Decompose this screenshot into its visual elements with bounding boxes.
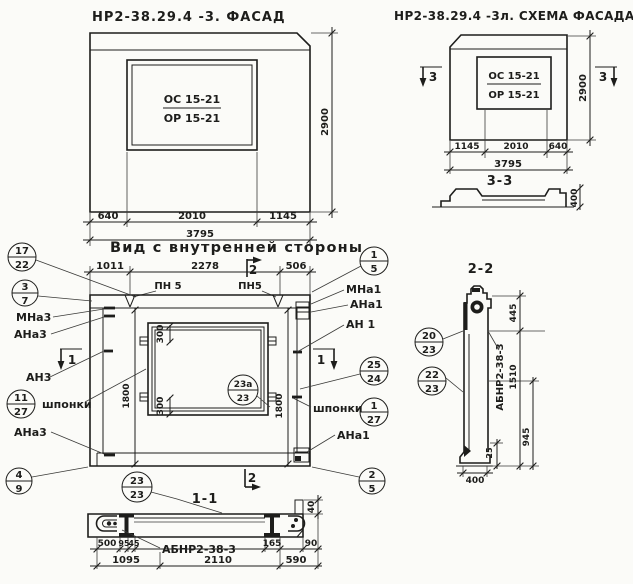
callout-2-5: 2 5 [312,467,385,495]
dim-506: 506 [286,261,307,272]
callout-4-9: 4 9 [6,467,88,495]
dim-400: 400 [570,189,580,208]
facade-window-mark-top: ОС 15-21 [164,93,220,106]
section-2-2-profile [456,286,493,466]
section-1-label: 1 [317,353,325,367]
section-1-mark-left: 1 [58,349,82,370]
label-ana3-low: АНа3 [14,426,47,439]
section-1-1-title: 1-1 [192,492,219,507]
dim-3795: 3795 [186,229,214,240]
section-2-2-title: 2-2 [468,262,495,277]
callout-top: 23а [234,380,253,390]
section-3-label: 3 [599,70,607,84]
section-3-mark-left: 3 [420,67,442,87]
facade-drawing: НР2-38.29.4 -3. ФАСАД ОС 15-21 ОР 15-21 … [83,10,338,246]
schema-window [477,57,551,109]
callout-bottom: 5 [369,484,376,495]
callout-top: 1 [371,401,378,412]
dim-590: 590 [286,555,307,566]
inner-panel [90,295,310,466]
facade-window-mark-bottom: ОР 15-21 [164,112,220,125]
dim-90: 90 [305,539,318,549]
label-shponki-left: шпонки [42,398,92,411]
dim-445: 445 [509,304,519,323]
dim-2278: 2278 [191,261,219,272]
drawing-sheet: НР2-38.29.4 -3. ФАСАД ОС 15-21 ОР 15-21 … [0,0,633,584]
section-2-label: 2 [249,263,257,277]
dim-1145: 1145 [269,211,297,222]
label-mna1: МНа1 [346,283,381,296]
dim-45: 45 [128,539,140,548]
callout-bottom: 23 [425,384,439,395]
label-an3: АН3 [26,371,51,384]
callout-bottom: 24 [367,374,381,385]
label-ana1: АНа1 [350,298,383,311]
inner-view-title: Вид с внутренней стороны [110,240,363,256]
callout-top: 22 [425,370,439,381]
dim-1095: 1095 [112,555,140,566]
schema-drawing: НР2-38.29.4 -3л. СХЕМА ФАСАДА ОС 15-21 О… [394,9,633,210]
callout-1-27: шпонки 1 27 [293,398,388,426]
dim-400: 400 [466,476,485,486]
callout-top: 23 [130,476,144,487]
schema-dimensions: 2900 1145 2010 640 3795 [444,30,596,174]
schema-panel-outline [450,35,567,140]
dim-640: 640 [98,211,119,222]
dim-2110: 2110 [204,555,232,566]
callout-top: 25 [367,360,381,371]
section-2-label: 2 [248,471,256,485]
section-1-1-dims-row2: 1095 2110 590 [90,552,322,569]
rail-label-pn5-right: ПН5 [238,281,262,292]
callout-top: 4 [16,470,23,481]
dim-40: 40 [307,501,317,514]
callout-bottom: 5 [371,264,378,275]
inner-top-dimensions: 1011 2278 506 [84,261,316,295]
schema-title: НР2-38.29.4 -3л. СХЕМА ФАСАДА [394,9,633,23]
callout-top: 2 [369,470,376,481]
rail-label-pn5-left: ПН 5 [154,281,181,292]
technical-drawing-canvas: НР2-38.29.4 -3. ФАСАД ОС 15-21 ОР 15-21 … [0,0,633,584]
dim-1800-left: 1800 [122,383,132,408]
label-shponki-right: шпонки [313,402,363,415]
bottom-right-bracket [294,448,309,462]
callout-bottom: 23 [237,394,250,404]
callout-20-23: 20 23 [415,328,463,356]
inner-view-drawing: Вид с внутренней стороны 1011 2278 506 2… [6,240,388,513]
dim-25: 25 [485,447,494,459]
schema-window-mark-top: ОС 15-21 [488,71,539,82]
label-abnr-vertical: АБНР2-38-3 [495,343,506,410]
section-3-label: 3 [429,70,437,84]
section-2-2: 2-2 20 23 22 23 АБНР2-38-3 [415,262,545,486]
callout-top: 20 [422,331,436,342]
dim-300-top: 300 [156,325,166,344]
callout-bottom: 7 [22,296,29,307]
callout-22-23: 22 23 [418,367,463,395]
dim-1145: 1145 [454,142,479,152]
callout-25-24: 25 24 [300,357,388,389]
dim-3795: 3795 [494,159,522,170]
label-ana1-low: АНа1 [337,429,370,442]
callout-bottom: 23 [422,345,436,356]
dim-2010: 2010 [178,211,206,222]
section-3-mark-right: 3 [595,67,617,87]
dim-300-bottom: 300 [156,397,166,416]
dim-2010: 2010 [503,142,528,152]
dim-2900: 2900 [320,108,331,136]
callout-bottom: 27 [14,407,28,418]
dim-2900: 2900 [578,74,589,102]
callout-3-7: 3 7 [12,280,92,307]
dim-500: 500 [98,539,117,549]
dim-640: 640 [549,142,568,152]
section-3-3: 3-3 400 [432,174,583,210]
section-1-mark-right: 1 [313,349,337,370]
callout-top: 3 [22,282,29,293]
dim-1800-right: 1800 [275,393,285,418]
callout-bottom: 27 [367,415,381,426]
section-2-mark-bottom: 2 [245,469,261,490]
callout-bottom: 9 [16,484,23,495]
section-1-1: 1-1 40 АБНР2-38-3 500 95 45 1 [88,492,323,569]
section-3-3-title: 3-3 [487,174,514,189]
callout-bottom: 22 [15,260,29,271]
label-mna3: МНа3 [16,311,51,324]
dim-1011: 1011 [96,261,124,272]
callout-top: 17 [15,246,29,257]
callout-top: 11 [14,393,28,404]
dim-165: 165 [263,539,282,549]
label-an1: АН 1 [346,318,375,331]
schema-window-mark-bottom: ОР 15-21 [488,90,539,101]
callout-top: 1 [371,250,378,261]
label-ana3: АНа3 [14,328,47,341]
facade-title: НР2-38.29.4 -3. ФАСАД [92,10,286,25]
callout-bottom: 23 [130,490,144,501]
dim-1510: 1510 [509,364,519,389]
section-2-mark-top: 2 [247,257,262,277]
dim-945: 945 [522,428,532,447]
